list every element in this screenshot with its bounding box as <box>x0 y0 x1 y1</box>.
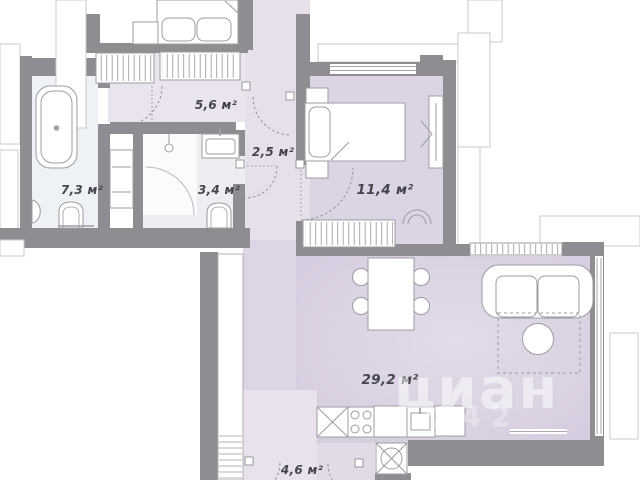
coffee-table-icon <box>523 324 554 355</box>
door-hinge <box>242 82 250 90</box>
entry-shelf-unit <box>218 254 243 480</box>
door-hinge <box>236 160 244 168</box>
exterior-shaft <box>0 150 18 230</box>
wall-segment <box>110 122 236 134</box>
balcony-strip <box>458 33 490 147</box>
pillow <box>162 18 195 41</box>
exterior-shaft <box>0 44 20 144</box>
chair-icon <box>413 298 430 315</box>
balcony-strip <box>540 216 640 246</box>
room-label-bathroom-large: 7,3 м² <box>61 183 103 197</box>
shelf-unit-icon <box>218 254 243 480</box>
wall-segment <box>443 60 456 256</box>
sofa-cushion <box>496 276 537 317</box>
room-label-entry-hall: 4,6 м² <box>281 463 323 477</box>
floor-plan: 5,6 м² 2,5 м² 3,4 м² 7,3 м² 11,4 м² 29,2… <box>0 0 640 480</box>
exterior-box <box>0 240 24 256</box>
wall-segment <box>200 252 218 480</box>
nightstand <box>133 22 158 44</box>
door-hinge <box>286 92 294 100</box>
wall-segment <box>238 0 253 50</box>
wall-segment <box>0 228 250 248</box>
exterior-ledge <box>318 44 480 62</box>
sofa-cushion <box>538 276 579 317</box>
balcony-strip <box>458 147 480 247</box>
living-window <box>595 256 603 436</box>
room-label-hallway: 5,6 м² <box>195 98 237 112</box>
dining-table-icon <box>368 258 414 330</box>
room-label-bathroom-small: 3,4 м² <box>198 183 240 197</box>
living-top-wardrobe <box>470 243 562 255</box>
room-label-bedroom: 11,4 м² <box>356 182 413 198</box>
room-label-living-kitchen: 29,2 м² <box>361 372 418 388</box>
chair-icon <box>353 298 370 315</box>
wall-segment <box>420 55 443 76</box>
pillow <box>197 18 231 41</box>
room-label-inner-corridor: 2,5 м² <box>252 145 294 159</box>
chair-icon <box>413 269 430 286</box>
wall-segment <box>133 134 143 228</box>
balcony-strip <box>610 333 638 439</box>
door-hinge <box>296 160 304 168</box>
bed-top-room <box>133 0 238 44</box>
wall-segment <box>20 56 32 230</box>
wall-segment <box>408 440 604 466</box>
door-hinge <box>245 457 253 465</box>
nightstand <box>306 161 328 178</box>
stove-icon <box>348 407 374 437</box>
kitchen-counter <box>435 406 465 436</box>
wall-segment <box>98 124 110 228</box>
kitchen-counter <box>374 406 407 437</box>
chair-icon <box>353 269 370 286</box>
nightstand <box>306 88 328 103</box>
bedroom-window <box>330 64 416 74</box>
pillow <box>309 107 330 157</box>
floor-plan-drawing <box>0 0 640 480</box>
bathroom-cabinet <box>110 150 133 208</box>
hallway-wardrobes <box>96 52 240 83</box>
door-hinge <box>355 459 363 467</box>
